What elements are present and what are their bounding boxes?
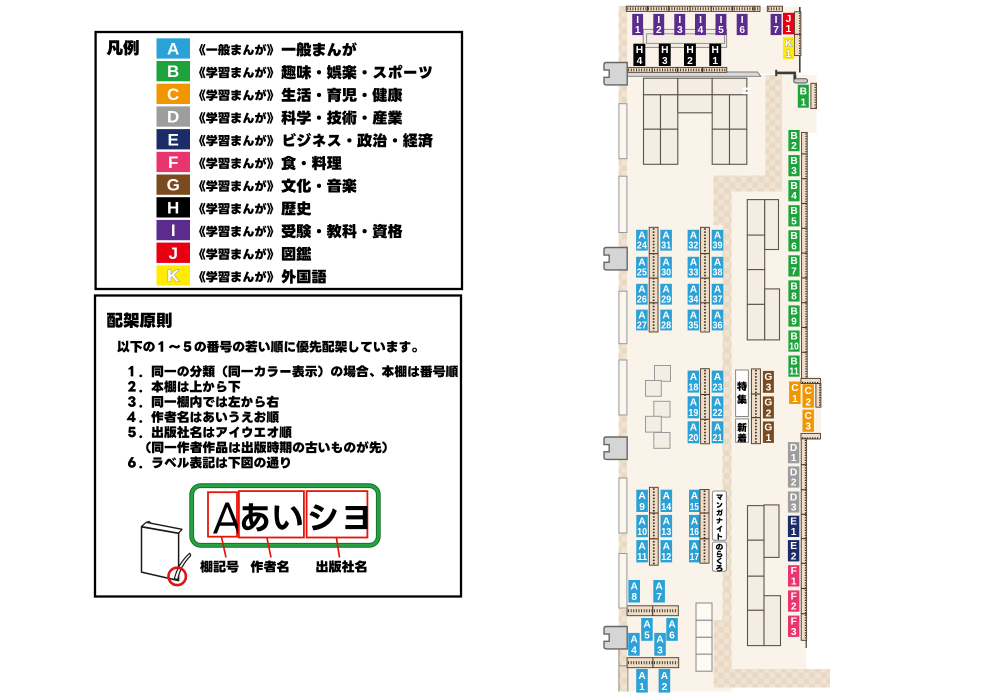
svg-text:D: D bbox=[167, 108, 179, 127]
svg-text:28: 28 bbox=[661, 320, 671, 331]
svg-text:A: A bbox=[690, 372, 698, 383]
svg-text:8: 8 bbox=[631, 592, 637, 603]
svg-text:H: H bbox=[167, 198, 179, 217]
svg-text:7: 7 bbox=[656, 592, 662, 603]
svg-text:A: A bbox=[663, 516, 671, 527]
svg-text:22: 22 bbox=[713, 408, 723, 419]
svg-text:A: A bbox=[663, 491, 671, 502]
svg-text:19: 19 bbox=[688, 408, 698, 419]
svg-text:5: 5 bbox=[718, 25, 724, 36]
svg-text:G: G bbox=[167, 176, 180, 195]
svg-text:20: 20 bbox=[688, 433, 698, 444]
svg-text:2: 2 bbox=[656, 25, 662, 36]
svg-text:9: 9 bbox=[791, 317, 797, 328]
svg-text:4: 4 bbox=[791, 191, 797, 202]
svg-text:A: A bbox=[714, 372, 722, 383]
svg-text:C: C bbox=[805, 411, 813, 422]
svg-text:6: 6 bbox=[669, 631, 675, 642]
svg-text:2: 2 bbox=[791, 602, 797, 613]
svg-text:13: 13 bbox=[661, 527, 671, 538]
svg-text:9: 9 bbox=[639, 502, 645, 513]
svg-text:36: 36 bbox=[713, 320, 723, 331]
svg-text:2: 2 bbox=[791, 478, 797, 489]
svg-text:1: 1 bbox=[786, 49, 792, 60]
svg-text:K: K bbox=[785, 38, 793, 49]
svg-text:3: 3 bbox=[805, 422, 811, 433]
svg-text:1: 1 bbox=[712, 56, 718, 67]
svg-text:A: A bbox=[167, 40, 179, 59]
svg-text:J: J bbox=[168, 244, 177, 263]
svg-text:A: A bbox=[691, 542, 699, 553]
svg-text:6: 6 bbox=[791, 241, 797, 252]
svg-text:1: 1 bbox=[800, 97, 806, 108]
svg-text:G: G bbox=[764, 422, 772, 433]
svg-text:18: 18 bbox=[688, 382, 698, 393]
svg-text:A: A bbox=[631, 582, 639, 593]
svg-text:17: 17 bbox=[690, 552, 699, 563]
svg-text:G: G bbox=[764, 398, 772, 409]
svg-text:A: A bbox=[638, 491, 646, 502]
svg-text:3: 3 bbox=[791, 166, 797, 177]
svg-text:2: 2 bbox=[687, 56, 693, 67]
svg-text:A: A bbox=[656, 635, 664, 646]
svg-text:1: 1 bbox=[791, 576, 797, 587]
svg-text:14: 14 bbox=[661, 502, 671, 513]
svg-text:B: B bbox=[800, 86, 807, 97]
svg-text:B: B bbox=[167, 62, 179, 81]
svg-text:I: I bbox=[171, 221, 176, 240]
svg-text:8: 8 bbox=[791, 291, 797, 302]
svg-text:H: H bbox=[661, 45, 668, 56]
svg-text:2: 2 bbox=[662, 682, 668, 693]
svg-text:A: A bbox=[691, 491, 699, 502]
svg-text:25: 25 bbox=[637, 268, 647, 279]
svg-text:27: 27 bbox=[637, 320, 647, 331]
svg-text:16: 16 bbox=[690, 527, 699, 538]
svg-text:30: 30 bbox=[661, 268, 671, 279]
svg-text:37: 37 bbox=[713, 295, 723, 306]
svg-text:C: C bbox=[167, 85, 179, 104]
svg-text:15: 15 bbox=[690, 502, 699, 513]
svg-text:24: 24 bbox=[637, 241, 647, 252]
svg-text:1: 1 bbox=[635, 25, 641, 36]
svg-text:31: 31 bbox=[661, 241, 671, 252]
svg-text:A: A bbox=[638, 516, 646, 527]
svg-text:C: C bbox=[805, 386, 813, 397]
svg-text:A: A bbox=[630, 635, 638, 646]
svg-text:34: 34 bbox=[688, 295, 698, 306]
svg-text:1: 1 bbox=[786, 24, 792, 35]
svg-text:6: 6 bbox=[739, 25, 745, 36]
svg-text:3: 3 bbox=[791, 503, 797, 514]
svg-text:3: 3 bbox=[677, 25, 683, 36]
svg-text:38: 38 bbox=[713, 268, 723, 279]
svg-text:12: 12 bbox=[661, 552, 671, 563]
svg-text:3: 3 bbox=[657, 645, 663, 656]
svg-text:29: 29 bbox=[661, 295, 671, 306]
svg-text:G: G bbox=[764, 372, 772, 383]
svg-text:3: 3 bbox=[662, 56, 668, 67]
svg-text:1: 1 bbox=[791, 453, 797, 464]
svg-text:1: 1 bbox=[792, 394, 798, 405]
svg-text:10: 10 bbox=[789, 342, 799, 353]
svg-text:E: E bbox=[168, 130, 179, 149]
svg-text:A: A bbox=[661, 671, 669, 682]
svg-text:7: 7 bbox=[773, 25, 779, 36]
svg-text:A: A bbox=[668, 620, 676, 631]
svg-text:A: A bbox=[690, 423, 698, 434]
svg-text:1: 1 bbox=[639, 682, 645, 693]
svg-text:5: 5 bbox=[644, 631, 650, 642]
svg-text:A: A bbox=[714, 398, 722, 409]
svg-text:35: 35 bbox=[688, 320, 698, 331]
svg-text:32: 32 bbox=[688, 241, 698, 252]
svg-text:26: 26 bbox=[637, 295, 647, 306]
svg-text:4: 4 bbox=[631, 645, 637, 656]
svg-text:11: 11 bbox=[789, 367, 799, 378]
svg-text:1: 1 bbox=[791, 527, 797, 538]
svg-text:A: A bbox=[655, 582, 663, 593]
svg-text:F: F bbox=[168, 153, 178, 172]
svg-text:33: 33 bbox=[688, 268, 698, 279]
svg-text:2: 2 bbox=[805, 397, 811, 408]
svg-text:21: 21 bbox=[713, 433, 723, 444]
svg-text:A: A bbox=[638, 542, 646, 553]
svg-text:C: C bbox=[791, 383, 799, 394]
svg-text:H: H bbox=[686, 45, 693, 56]
svg-text:23: 23 bbox=[713, 382, 723, 393]
svg-text:A: A bbox=[663, 542, 671, 553]
svg-text:A: A bbox=[691, 516, 699, 527]
svg-text:3: 3 bbox=[766, 383, 772, 394]
svg-text:2: 2 bbox=[791, 141, 797, 152]
svg-text:H: H bbox=[712, 45, 719, 56]
svg-text:2: 2 bbox=[791, 551, 797, 562]
svg-text:3: 3 bbox=[791, 627, 797, 638]
svg-text:A: A bbox=[714, 423, 722, 434]
svg-text:4: 4 bbox=[698, 25, 704, 36]
svg-text:A: A bbox=[638, 671, 646, 682]
svg-text:K: K bbox=[167, 267, 180, 286]
svg-text:5: 5 bbox=[791, 216, 797, 227]
svg-text:A: A bbox=[690, 398, 698, 409]
svg-text:7: 7 bbox=[791, 266, 797, 277]
svg-text:10: 10 bbox=[637, 527, 647, 538]
svg-text:4: 4 bbox=[637, 56, 643, 67]
svg-text:A: A bbox=[643, 620, 651, 631]
svg-text:11: 11 bbox=[637, 552, 647, 563]
svg-text:H: H bbox=[636, 45, 643, 56]
svg-text:2: 2 bbox=[766, 408, 772, 419]
svg-text:39: 39 bbox=[713, 241, 723, 252]
svg-text:1: 1 bbox=[766, 433, 772, 444]
